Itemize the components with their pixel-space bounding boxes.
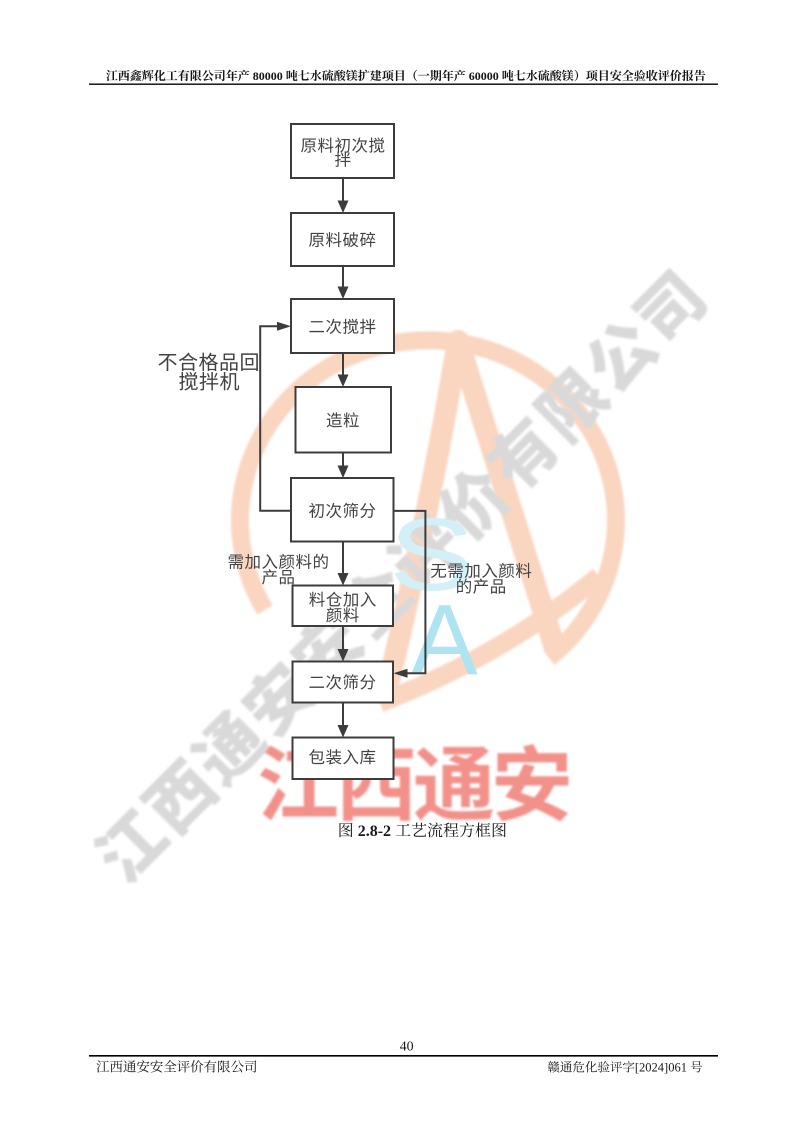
svg-text:A: A xyxy=(411,584,478,696)
svg-text:60000: 60000 xyxy=(469,69,499,83)
svg-text:[2024]061: [2024]061 xyxy=(635,1061,687,1075)
svg-text:2.8-2: 2.8-2 xyxy=(358,823,391,840)
svg-text:40: 40 xyxy=(400,1039,414,1054)
svg-text:80000: 80000 xyxy=(253,69,283,83)
